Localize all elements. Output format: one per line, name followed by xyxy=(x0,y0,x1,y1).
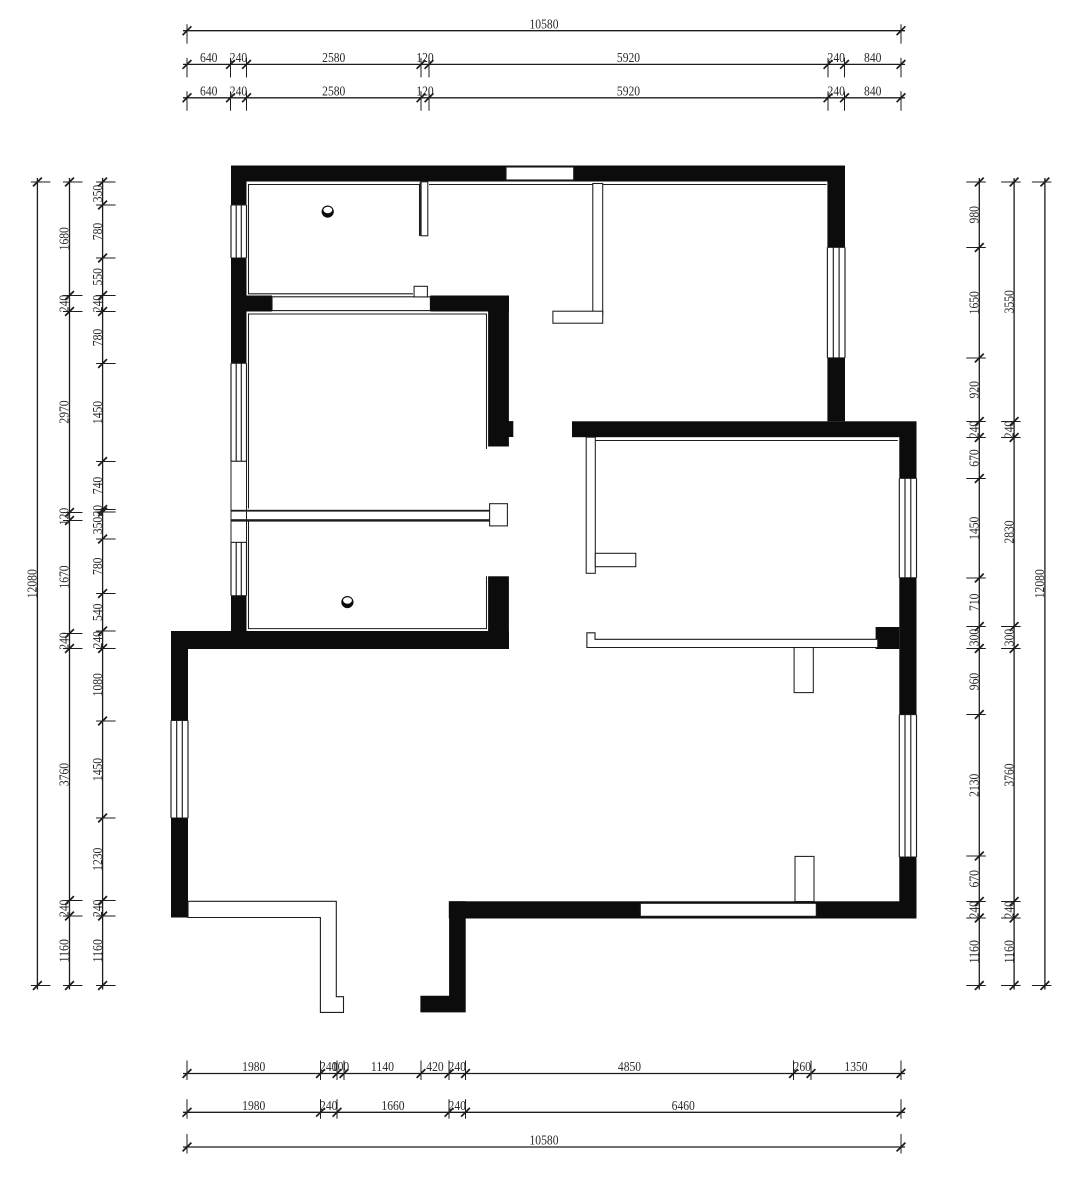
svg-text:710: 710 xyxy=(967,593,982,611)
svg-text:240: 240 xyxy=(230,50,248,65)
svg-text:350: 350 xyxy=(90,184,105,202)
svg-text:240: 240 xyxy=(449,1098,467,1113)
svg-text:260: 260 xyxy=(794,1059,812,1074)
svg-text:240: 240 xyxy=(1001,420,1016,438)
svg-text:840: 840 xyxy=(864,83,882,98)
svg-text:1680: 1680 xyxy=(57,227,72,251)
svg-text:640: 640 xyxy=(200,83,218,98)
svg-text:1450: 1450 xyxy=(967,516,982,540)
svg-text:2580: 2580 xyxy=(322,50,346,65)
svg-text:1160: 1160 xyxy=(57,939,72,963)
svg-text:2130: 2130 xyxy=(967,773,982,797)
svg-text:670: 670 xyxy=(967,870,982,888)
svg-text:1230: 1230 xyxy=(90,847,105,871)
svg-text:240: 240 xyxy=(828,50,846,65)
svg-text:240: 240 xyxy=(57,632,72,650)
svg-text:240: 240 xyxy=(90,631,105,649)
svg-text:120: 120 xyxy=(416,50,434,65)
svg-text:240: 240 xyxy=(828,83,846,98)
svg-text:5920: 5920 xyxy=(617,50,641,65)
svg-text:960: 960 xyxy=(967,672,982,690)
svg-text:540: 540 xyxy=(90,603,105,621)
svg-text:240: 240 xyxy=(320,1098,338,1113)
svg-text:20: 20 xyxy=(90,505,105,517)
svg-text:12080: 12080 xyxy=(1032,569,1047,598)
svg-text:980: 980 xyxy=(967,206,982,224)
svg-text:840: 840 xyxy=(864,50,882,65)
svg-text:640: 640 xyxy=(200,50,218,65)
svg-text:6460: 6460 xyxy=(672,1098,696,1113)
svg-text:1160: 1160 xyxy=(1001,940,1016,964)
svg-text:780: 780 xyxy=(90,222,105,240)
svg-text:2830: 2830 xyxy=(1001,520,1016,544)
svg-text:240: 240 xyxy=(449,1059,467,1074)
svg-text:240: 240 xyxy=(90,294,105,312)
svg-text:240: 240 xyxy=(1001,901,1016,919)
svg-text:240: 240 xyxy=(90,899,105,917)
svg-text:550: 550 xyxy=(90,268,105,286)
svg-text:1650: 1650 xyxy=(967,291,982,315)
svg-text:3760: 3760 xyxy=(57,763,72,787)
svg-text:780: 780 xyxy=(90,328,105,346)
svg-text:240: 240 xyxy=(57,294,72,312)
svg-text:100: 100 xyxy=(332,1059,350,1074)
svg-text:10580: 10580 xyxy=(530,1133,559,1148)
svg-text:920: 920 xyxy=(967,381,982,399)
svg-text:350: 350 xyxy=(90,516,105,534)
svg-text:740: 740 xyxy=(90,476,105,494)
svg-text:3760: 3760 xyxy=(1001,763,1016,787)
svg-text:1080: 1080 xyxy=(90,673,105,697)
svg-text:300: 300 xyxy=(1001,628,1016,646)
svg-text:5920: 5920 xyxy=(617,83,641,98)
svg-text:420: 420 xyxy=(426,1059,444,1074)
svg-text:2580: 2580 xyxy=(322,83,346,98)
svg-text:1670: 1670 xyxy=(57,565,72,589)
svg-text:1350: 1350 xyxy=(844,1059,868,1074)
svg-text:780: 780 xyxy=(90,557,105,575)
svg-text:2970: 2970 xyxy=(57,400,72,424)
svg-text:670: 670 xyxy=(967,449,982,467)
svg-text:240: 240 xyxy=(967,420,982,438)
svg-text:3550: 3550 xyxy=(1001,290,1016,314)
svg-text:1980: 1980 xyxy=(242,1059,266,1074)
svg-text:1160: 1160 xyxy=(90,939,105,963)
svg-text:10580: 10580 xyxy=(530,16,559,31)
svg-text:1450: 1450 xyxy=(90,401,105,425)
svg-text:1140: 1140 xyxy=(371,1059,395,1074)
svg-text:240: 240 xyxy=(57,899,72,917)
svg-text:240: 240 xyxy=(230,83,248,98)
svg-text:1450: 1450 xyxy=(90,758,105,782)
svg-text:120: 120 xyxy=(416,83,434,98)
svg-text:1160: 1160 xyxy=(967,940,982,964)
svg-text:1660: 1660 xyxy=(381,1098,405,1113)
svg-text:12080: 12080 xyxy=(25,569,40,598)
svg-text:4850: 4850 xyxy=(618,1059,642,1074)
svg-text:1980: 1980 xyxy=(242,1098,266,1113)
svg-text:300: 300 xyxy=(967,628,982,646)
svg-text:240: 240 xyxy=(967,901,982,919)
svg-text:120: 120 xyxy=(57,507,72,525)
